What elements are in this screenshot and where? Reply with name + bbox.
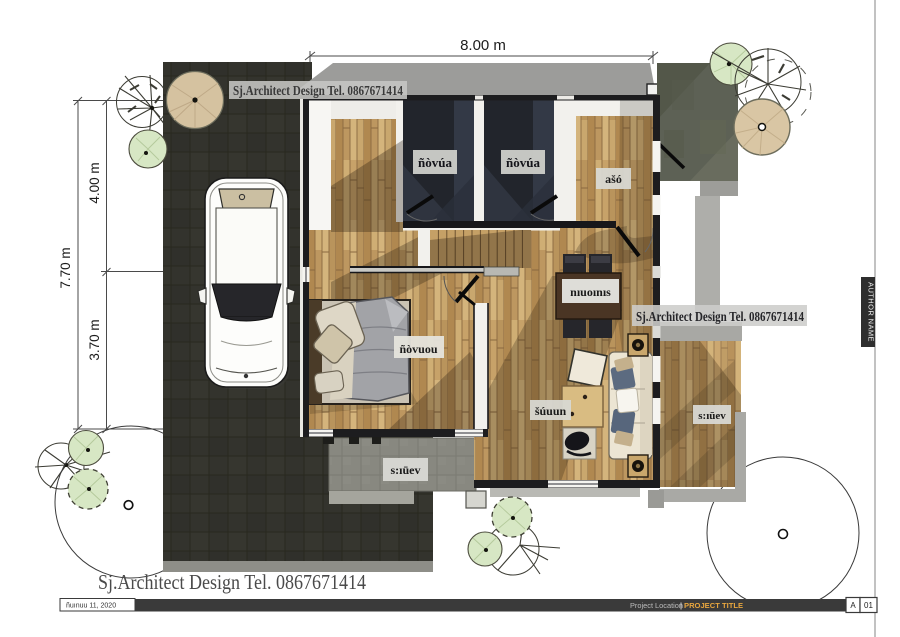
svg-text:ñòvúa: ñòvúa (506, 155, 540, 170)
svg-text:4.00 m: 4.00 m (87, 162, 102, 203)
svg-text:ñuınuu 11, 2020: ñuınuu 11, 2020 (66, 603, 116, 610)
svg-text:šúuun: šúuun (535, 404, 567, 418)
svg-text:ašó: ašó (605, 172, 622, 186)
svg-text:Sj.Architect Design Tel. 08676: Sj.Architect Design Tel. 0867671414 (98, 570, 366, 594)
svg-text:Sj.Architect Design Tel. 08676: Sj.Architect Design Tel. 0867671414 (636, 310, 804, 325)
svg-text:ñòvuou: ñòvuou (399, 342, 437, 356)
svg-text:Project Location: Project Location (630, 601, 683, 610)
svg-text:|: | (680, 601, 682, 610)
svg-text:s:ıūev: s:ıūev (698, 410, 726, 422)
svg-text:01: 01 (864, 601, 873, 610)
svg-text:s:ıūev: s:ıūev (391, 463, 421, 477)
svg-text:A: A (850, 601, 856, 610)
svg-text:7.70 m: 7.70 m (58, 247, 73, 288)
svg-text:AUTHOR NAME: AUTHOR NAME (867, 282, 876, 342)
svg-text:3.70 m: 3.70 m (87, 319, 102, 360)
svg-text:ñòvúa: ñòvúa (418, 155, 452, 170)
svg-text:nıuoınıs: nıuoınıs (570, 285, 611, 299)
svg-text:Sj.Architect Design Tel. 08676: Sj.Architect Design Tel. 0867671414 (233, 83, 403, 98)
svg-text:PROJECT TITLE: PROJECT TITLE (684, 601, 743, 610)
svg-text:8.00 m: 8.00 m (460, 37, 506, 54)
